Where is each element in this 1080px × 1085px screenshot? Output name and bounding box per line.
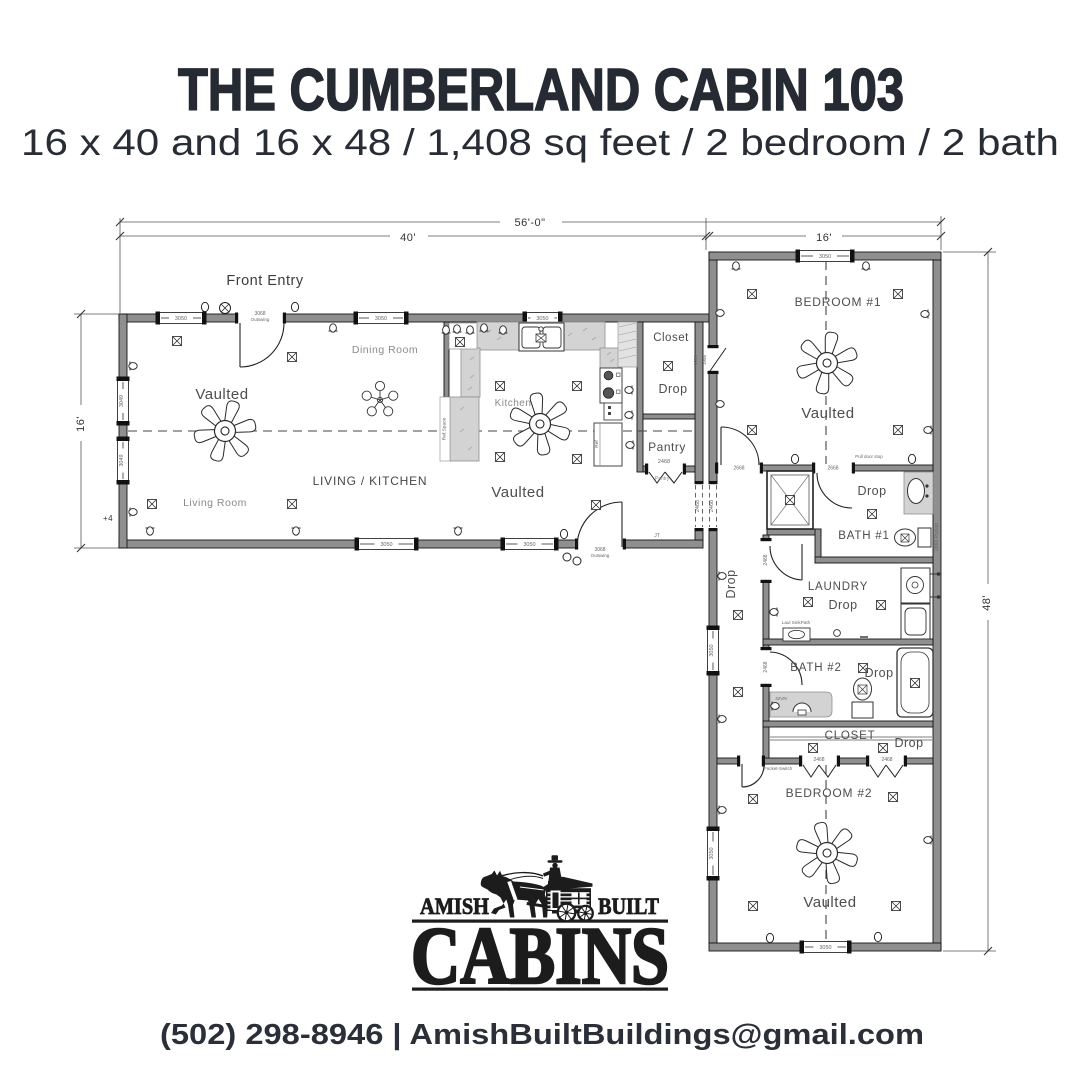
svg-text:3050: 3050 (709, 644, 715, 656)
svg-text:(502) 298-8946 | AmishBuiltBui: (502) 298-8946 | AmishBuiltBuildings@gma… (160, 1019, 924, 1051)
svg-text:2468: 2468 (763, 554, 769, 565)
svg-text:3050: 3050 (819, 945, 831, 951)
svg-text:Vaulted: Vaulted (195, 386, 248, 403)
svg-text:THE CUMBERLAND CABIN 103: THE CUMBERLAND CABIN 103 (178, 57, 904, 123)
svg-text:BATH #1: BATH #1 (838, 530, 889, 542)
svg-text:+4: +4 (103, 514, 113, 523)
svg-text:Living Room: Living Room (183, 497, 247, 509)
svg-text:JT: JT (654, 533, 660, 539)
svg-text:2468: 2468 (658, 459, 670, 465)
svg-text:Outswing: Outswing (591, 553, 610, 558)
svg-text:2668: 2668 (827, 466, 838, 472)
svg-text:16 x 40 and 16 x 48 / 1,408 sq: 16 x 40 and 16 x 48 / 1,408 sq feet / 2 … (21, 121, 1059, 163)
svg-text:LIVING / KITCHEN: LIVING / KITCHEN (313, 474, 428, 488)
svg-text:Vaulted: Vaulted (803, 894, 856, 911)
svg-text:3050: 3050 (380, 542, 392, 548)
svg-text:2868 Pocket: 2868 Pocket (934, 522, 940, 550)
svg-text:Pocket-Switch: Pocket-Switch (764, 766, 793, 771)
svg-text:BEDROOM #2: BEDROOM #2 (786, 786, 873, 800)
svg-text:LAUNDRY: LAUNDRY (808, 581, 868, 593)
svg-text:1986: 1986 (702, 354, 707, 365)
svg-text:Laul SinkPath: Laul SinkPath (782, 620, 811, 625)
svg-text:BEDROOM #1: BEDROOM #1 (795, 295, 882, 309)
svg-text:Drop: Drop (658, 382, 687, 396)
svg-text:3049: 3049 (119, 454, 125, 466)
svg-text:Drop: Drop (724, 569, 738, 598)
svg-text:2668: 2668 (733, 466, 744, 472)
svg-text:16': 16' (75, 416, 87, 432)
svg-text:2468: 2468 (709, 500, 715, 512)
svg-text:Drop: Drop (894, 736, 923, 750)
svg-text:BATH #2: BATH #2 (790, 662, 841, 674)
svg-text:Drop: Drop (864, 666, 893, 680)
svg-text:Front Entry: Front Entry (226, 273, 303, 289)
svg-text:2468: 2468 (695, 500, 701, 512)
svg-text:Pantry: Pantry (655, 476, 670, 482)
svg-text:Ref.Space: Ref.Space (442, 417, 448, 440)
svg-text:CABINS: CABINS (411, 910, 669, 1001)
svg-text:2468: 2468 (881, 757, 892, 763)
svg-text:40': 40' (400, 232, 416, 244)
svg-text:Pantry: Pantry (648, 440, 686, 454)
svg-text:56'-0": 56'-0" (514, 217, 545, 229)
svg-text:48': 48' (981, 595, 993, 611)
svg-text:42VN: 42VN (775, 696, 787, 701)
svg-text:Closet: Closet (653, 332, 689, 344)
svg-text:Vaulted: Vaulted (801, 405, 854, 422)
svg-text:Vaulted: Vaulted (491, 484, 544, 501)
svg-text:3050: 3050 (709, 847, 715, 859)
svg-text:Kitchen: Kitchen (495, 398, 532, 409)
svg-text:Outswing: Outswing (251, 317, 270, 322)
svg-text:Ref: Ref (594, 440, 600, 448)
svg-text:3050: 3050 (536, 316, 548, 322)
svg-text:2468: 2468 (763, 661, 769, 672)
svg-text:Drop: Drop (828, 598, 857, 612)
svg-text:Pull door stop: Pull door stop (855, 454, 883, 459)
svg-text:3050: 3050 (375, 316, 387, 322)
svg-text:2468: 2468 (813, 757, 824, 763)
svg-text:Drop: Drop (857, 484, 886, 498)
svg-text:1986: 1986 (693, 354, 698, 365)
svg-text:3049: 3049 (119, 395, 125, 407)
svg-text:Dining Room: Dining Room (352, 344, 418, 356)
svg-text:3050: 3050 (523, 542, 535, 548)
svg-text:3050: 3050 (819, 254, 831, 260)
svg-text:CLOSET: CLOSET (825, 730, 876, 742)
svg-text:3050: 3050 (175, 316, 187, 322)
svg-text:16': 16' (816, 232, 832, 244)
